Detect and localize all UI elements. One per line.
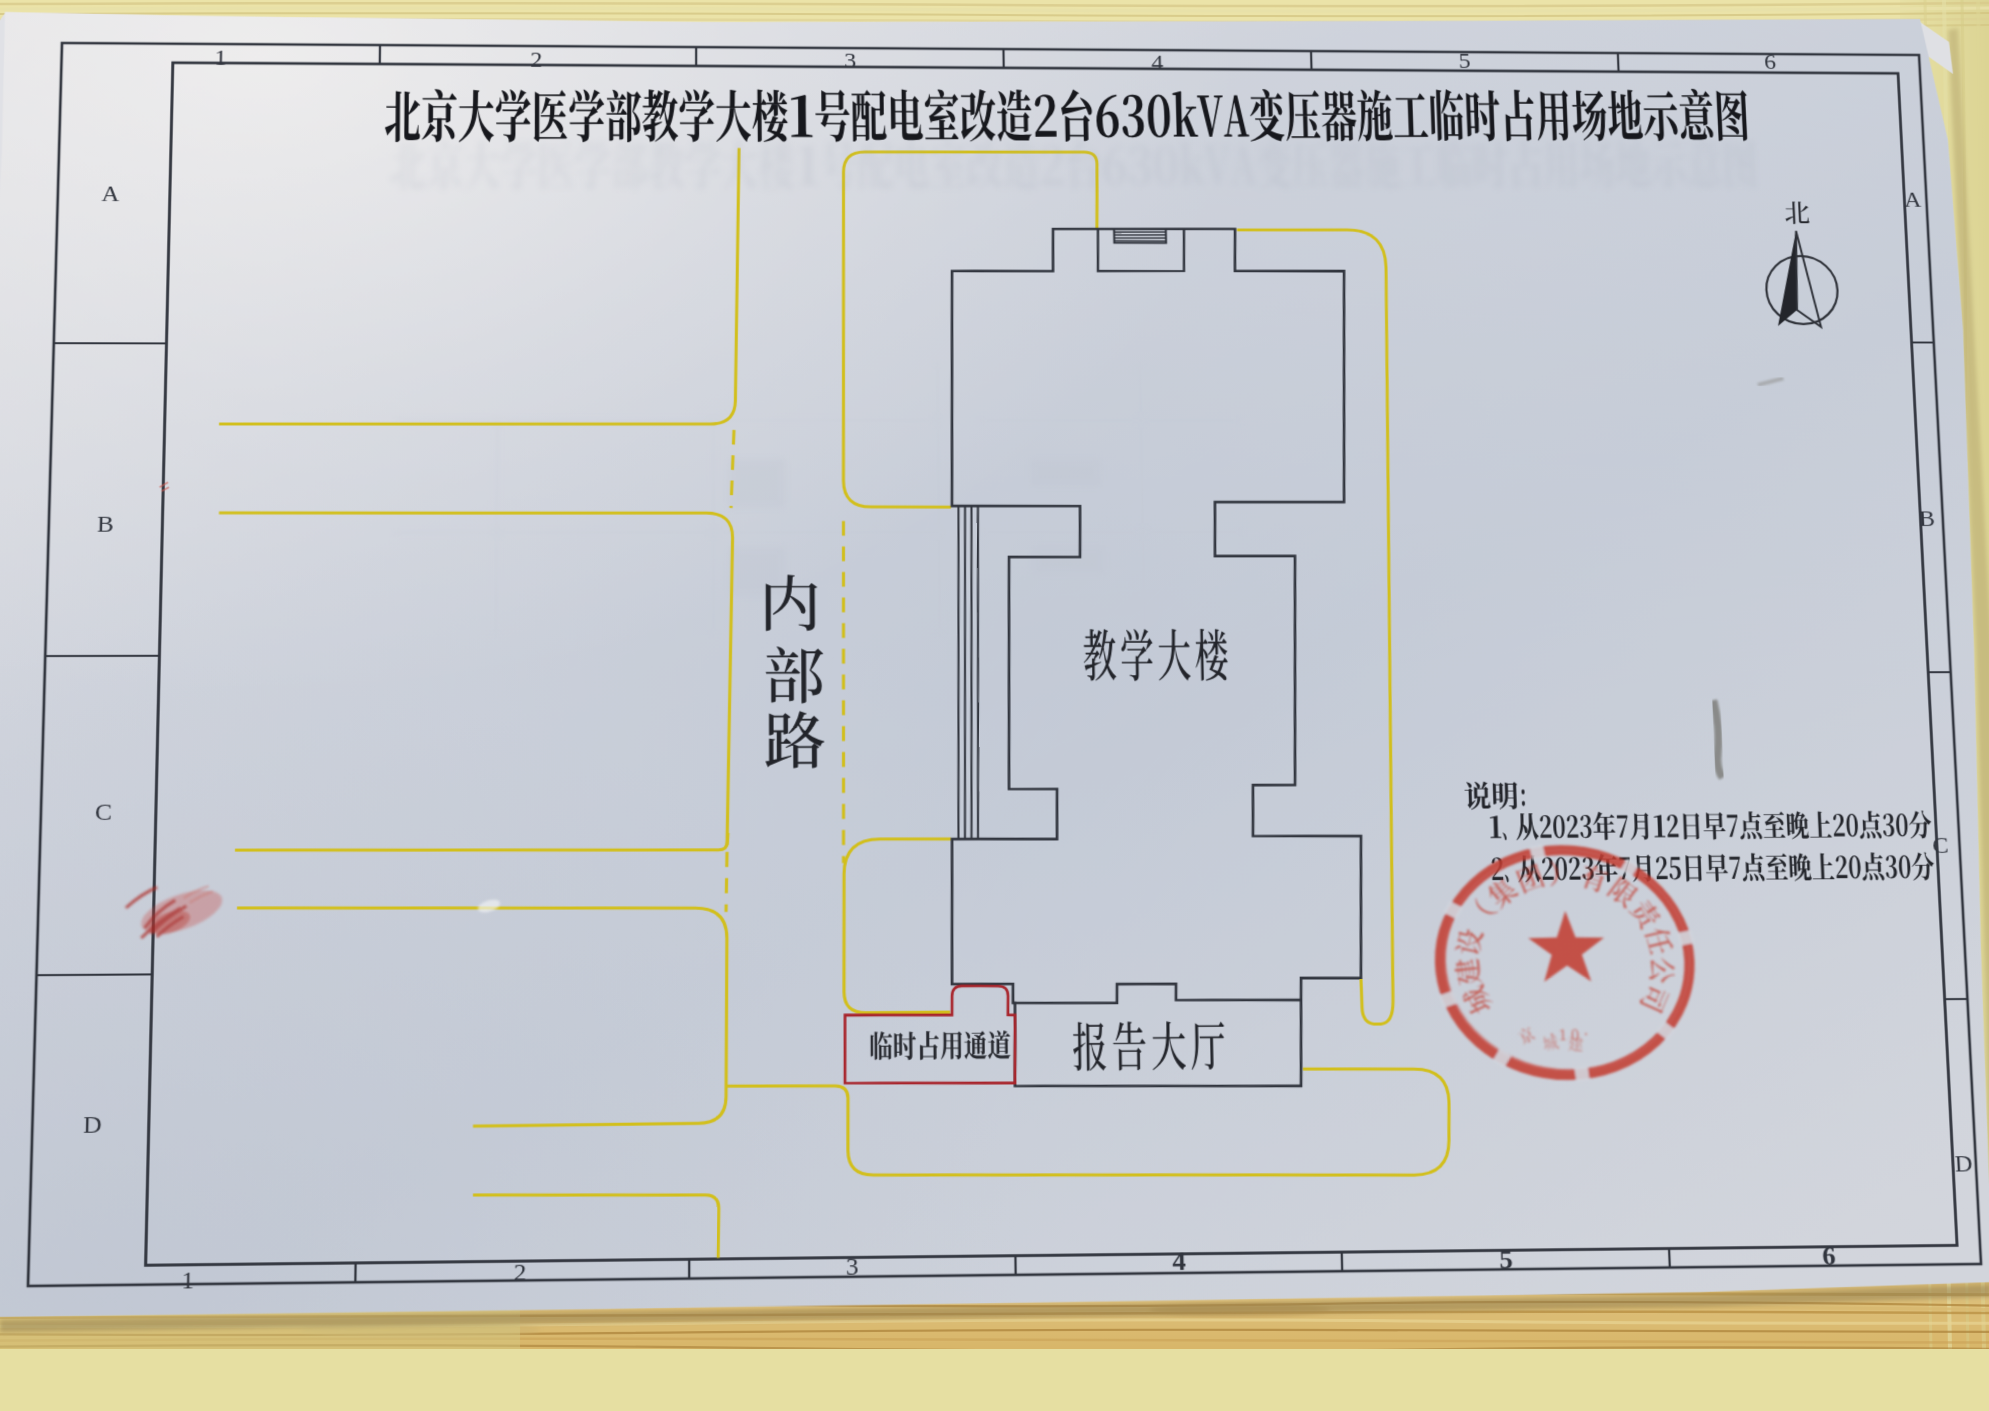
svg-text:4: 4	[1172, 1246, 1186, 1276]
svg-text:A: A	[1904, 188, 1922, 213]
svg-text:C: C	[1932, 833, 1949, 859]
svg-text:B: B	[97, 512, 114, 538]
svg-text:D: D	[83, 1112, 102, 1139]
svg-text:5: 5	[1458, 49, 1471, 74]
svg-text:C: C	[95, 799, 113, 826]
svg-text:5: 5	[1499, 1244, 1513, 1274]
svg-text:3: 3	[846, 1254, 859, 1281]
svg-text:A: A	[101, 182, 120, 207]
svg-text:3: 3	[844, 49, 856, 74]
svg-text:D: D	[1954, 1151, 1973, 1178]
svg-text:1: 1	[214, 46, 227, 71]
svg-text:1: 1	[181, 1267, 195, 1295]
svg-text:6: 6	[1822, 1241, 1837, 1271]
svg-text:4: 4	[1151, 51, 1164, 76]
svg-text:· 1 0 ·: · 1 0 ·	[1549, 1027, 1589, 1045]
svg-text:2: 2	[530, 48, 542, 73]
svg-text:6: 6	[1764, 50, 1777, 74]
svg-text:2: 2	[514, 1259, 527, 1287]
svg-text:B: B	[1918, 506, 1935, 531]
